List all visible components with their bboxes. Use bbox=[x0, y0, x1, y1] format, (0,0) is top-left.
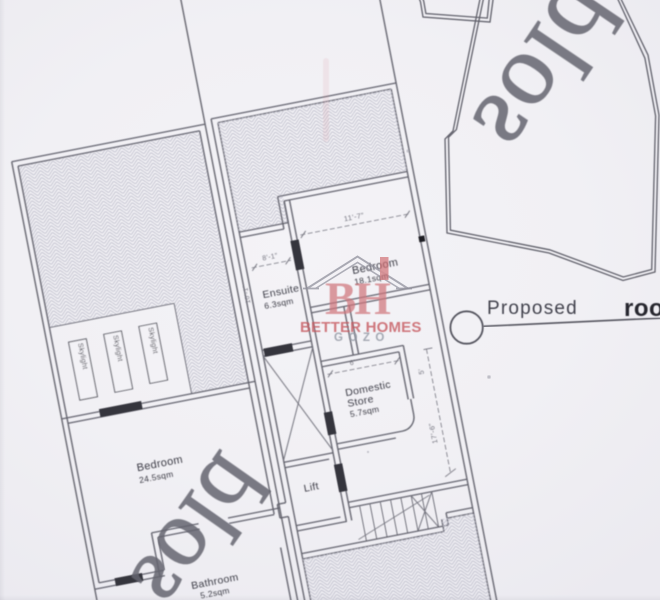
svg-text:8’-1”: 8’-1” bbox=[262, 253, 279, 263]
svg-text:roof: roof bbox=[624, 295, 660, 322]
svg-text:sold: sold bbox=[112, 436, 289, 600]
svg-text:5’: 5’ bbox=[418, 368, 426, 375]
svg-text:Proposed: Proposed bbox=[487, 298, 578, 319]
svg-text:17’-6”: 17’-6” bbox=[427, 422, 440, 445]
svg-text:11’-7”: 11’-7” bbox=[343, 211, 365, 224]
svg-text:Lift: Lift bbox=[303, 480, 320, 495]
svg-text:sold: sold bbox=[451, 0, 644, 172]
